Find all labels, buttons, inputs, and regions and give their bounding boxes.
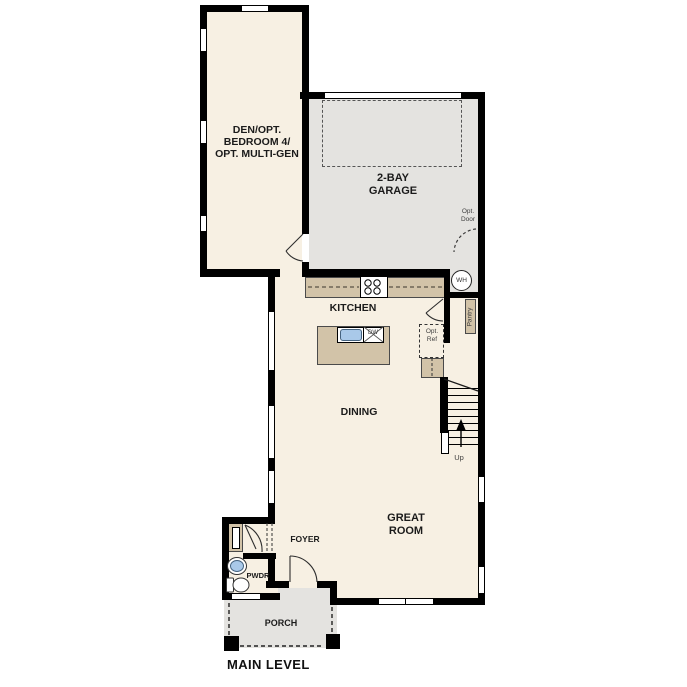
right-wall <box>478 92 485 605</box>
dining-label: DINING <box>341 406 378 418</box>
stairwell-wall <box>440 377 448 433</box>
hall-area <box>275 234 302 269</box>
foyer-label: FOYER <box>290 535 319 545</box>
den-label: DEN/OPT. BEDROOM 4/ OPT. MULTI-GEN <box>215 124 299 161</box>
powder-window <box>232 593 260 600</box>
porch-post-right <box>326 634 340 649</box>
pantry-wall <box>444 298 450 343</box>
closet-shelf <box>232 527 240 549</box>
great-room-bottom-window <box>406 598 433 605</box>
garage-door <box>325 92 461 99</box>
cabinet <box>421 358 444 378</box>
powder-left-wall <box>222 517 229 600</box>
foyer-front-wall-left <box>266 581 289 588</box>
powder-top-wall <box>222 517 275 524</box>
stair-rail <box>441 431 449 454</box>
dining-window <box>268 471 275 503</box>
water-heater-label: WH <box>456 277 467 284</box>
up-label: Up <box>454 454 464 463</box>
den-top-window <box>242 5 268 12</box>
den-window <box>200 121 207 143</box>
garage-bay-outline <box>322 100 462 167</box>
opt-ref-label: Opt. Ref <box>426 328 438 343</box>
garage-top-stub-left <box>300 92 326 99</box>
garage-label: 2-BAY GARAGE <box>369 172 417 198</box>
sink-dw-divider <box>363 327 364 343</box>
great-room-window <box>478 567 485 593</box>
plan-title: MAIN LEVEL <box>227 657 310 672</box>
dw-label: DW <box>368 330 378 337</box>
porch-post-left <box>224 636 239 651</box>
cooktop <box>360 275 388 298</box>
den-window <box>200 216 207 231</box>
kitchen-sink <box>340 329 362 341</box>
water-heater-icon: WH <box>451 270 472 291</box>
dining-window <box>268 312 275 370</box>
opt-door-label: Opt. Door <box>461 208 475 223</box>
floor-plan: WH <box>0 0 687 687</box>
great-room-window <box>478 477 485 502</box>
den-window <box>200 29 207 51</box>
garage-bottom-wall <box>303 269 449 277</box>
kitchen-label: KITCHEN <box>330 302 377 314</box>
porch-label: PORCH <box>265 618 298 628</box>
dining-window <box>268 406 275 458</box>
great-room-bottom-window <box>379 598 405 605</box>
stair-treads <box>448 388 478 451</box>
great-room-label: GREAT ROOM <box>387 512 425 538</box>
den-right-wall <box>302 5 309 234</box>
powder-label: PWDR <box>247 572 270 581</box>
pantry-label: Pantry <box>465 300 477 335</box>
